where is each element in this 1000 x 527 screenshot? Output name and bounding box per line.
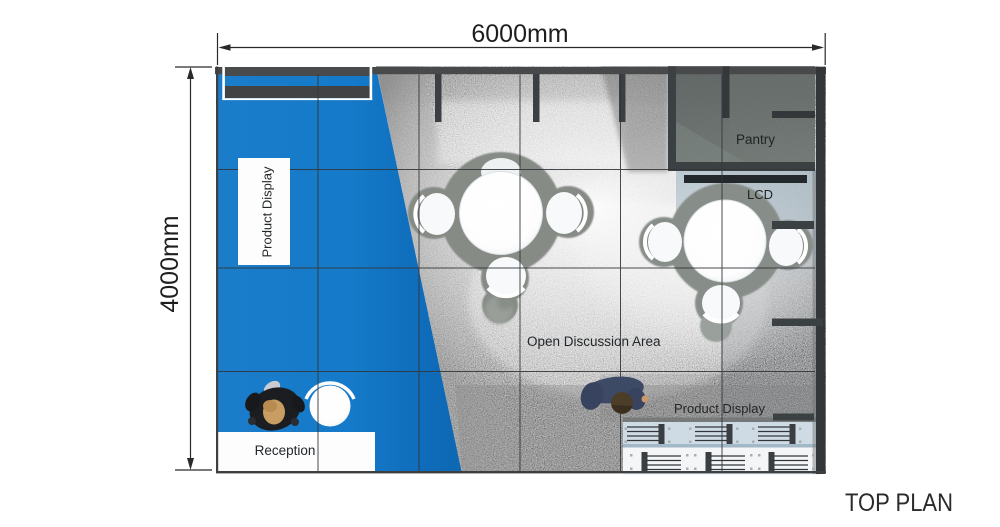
svg-text:Open Discussion Area: Open Discussion Area	[527, 334, 661, 349]
svg-text:Pantry: Pantry	[736, 132, 775, 147]
svg-text:TOP PLAN: TOP PLAN	[845, 489, 953, 517]
svg-text:6000mm: 6000mm	[471, 20, 568, 48]
svg-text:Product Display: Product Display	[259, 166, 274, 258]
svg-text:Product Display: Product Display	[674, 401, 766, 416]
svg-text:LCD: LCD	[747, 187, 773, 202]
svg-text:Reception: Reception	[255, 443, 316, 458]
svg-text:4000mm: 4000mm	[156, 215, 184, 312]
